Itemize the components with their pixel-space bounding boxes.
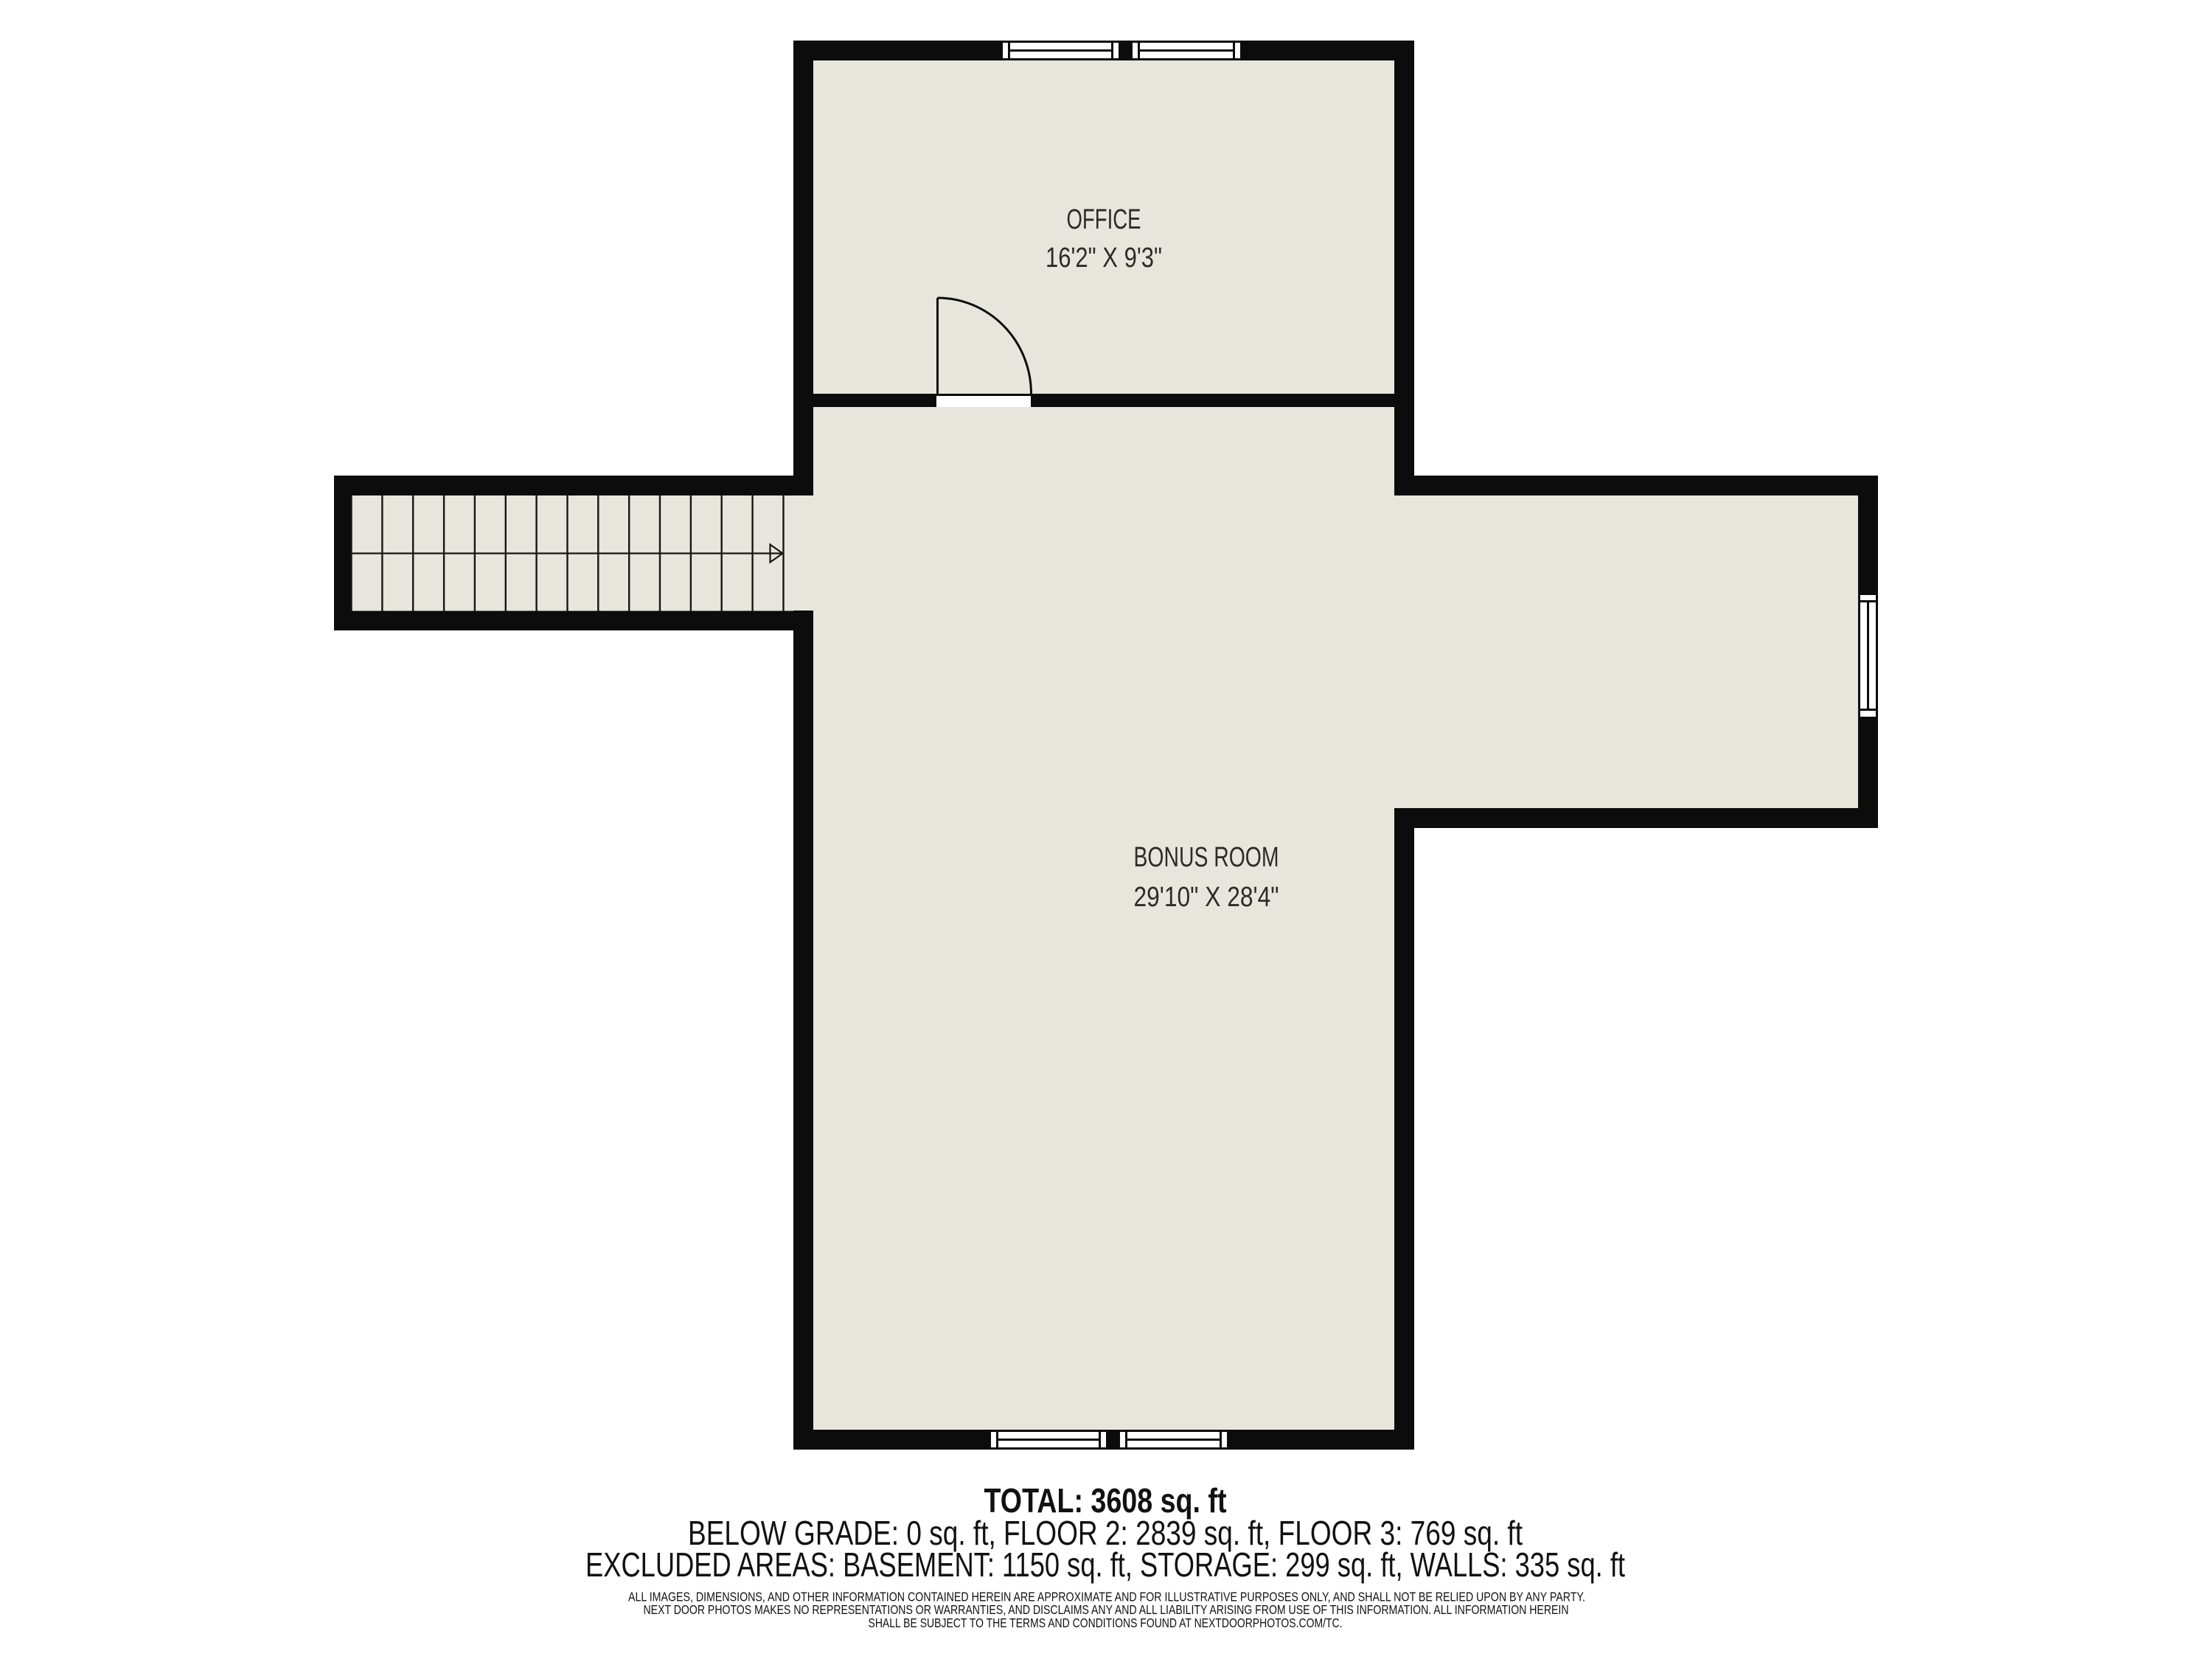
svg-text:29'10" X 28'4": 29'10" X 28'4" [1134, 882, 1279, 913]
svg-text:EXCLUDED AREAS: BASEMENT: 1150: EXCLUDED AREAS: BASEMENT: 1150 sq. ft, S… [585, 1545, 1625, 1584]
svg-text:16'2" X 9'3": 16'2" X 9'3" [1046, 243, 1162, 274]
svg-text:BONUS ROOM: BONUS ROOM [1134, 842, 1279, 873]
svg-text:OFFICE: OFFICE [1067, 204, 1141, 235]
svg-text:NEXT DOOR PHOTOS MAKES NO REPR: NEXT DOOR PHOTOS MAKES NO REPRESENTATION… [644, 1602, 1569, 1617]
svg-text:SHALL BE SUBJECT TO THE TERMS: SHALL BE SUBJECT TO THE TERMS AND CONDIT… [869, 1615, 1343, 1630]
